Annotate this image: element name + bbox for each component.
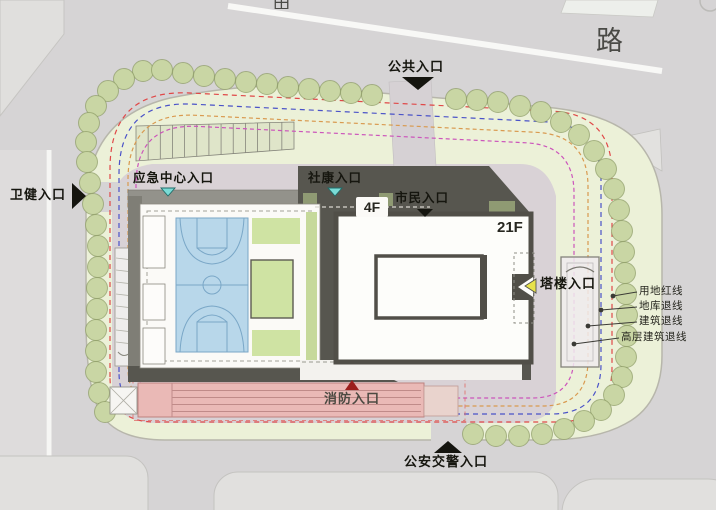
tree bbox=[79, 113, 100, 134]
label-health-entrance: 卫健入口 bbox=[10, 188, 66, 201]
roof-core bbox=[376, 256, 482, 318]
tree bbox=[86, 215, 107, 236]
tree bbox=[362, 85, 383, 106]
tree bbox=[574, 411, 595, 432]
lawn-patch bbox=[252, 218, 300, 244]
skylight bbox=[143, 216, 165, 268]
walkway-police bbox=[431, 416, 467, 443]
label-police-entrance: 公安交警入口 bbox=[404, 455, 488, 468]
tree bbox=[299, 79, 320, 100]
legend-highrise-setback: 高层建筑退线 bbox=[621, 332, 687, 343]
tower-floor-badge: 21F bbox=[497, 220, 523, 235]
sidewalk-bottom-left bbox=[0, 456, 148, 510]
label-clinic-entrance: 社康入口 bbox=[308, 172, 362, 185]
tree bbox=[584, 141, 605, 162]
label-emergency-entrance: 应急中心入口 bbox=[133, 172, 214, 185]
road-name: 路 bbox=[596, 28, 625, 55]
tree bbox=[612, 221, 633, 242]
tree bbox=[88, 257, 109, 278]
tree bbox=[320, 81, 341, 102]
tree bbox=[551, 112, 572, 133]
tree bbox=[609, 200, 630, 221]
sidewalk-bottom-center bbox=[214, 472, 558, 510]
tree bbox=[596, 159, 617, 180]
label-citizen-entrance: 市民入口 bbox=[395, 192, 449, 205]
tree bbox=[77, 152, 98, 173]
label-tower-entrance: 塔楼入口 bbox=[540, 277, 596, 290]
right-ramp bbox=[561, 257, 599, 367]
tree bbox=[194, 66, 215, 87]
tree bbox=[215, 69, 236, 90]
tree bbox=[83, 194, 104, 215]
tree bbox=[463, 424, 484, 445]
tree bbox=[510, 96, 531, 117]
tree bbox=[509, 426, 530, 447]
tree bbox=[278, 77, 299, 98]
tree bbox=[488, 92, 509, 113]
tree bbox=[257, 74, 278, 95]
site-plan-drawing bbox=[0, 0, 716, 510]
tree bbox=[86, 362, 107, 383]
podium-floor-badge: 4F bbox=[356, 197, 388, 217]
tree bbox=[486, 426, 507, 447]
tree bbox=[569, 125, 590, 146]
tree bbox=[341, 83, 362, 104]
tree bbox=[532, 424, 553, 445]
tree bbox=[87, 278, 108, 299]
lawn-patch bbox=[251, 260, 293, 318]
green-strip bbox=[306, 212, 317, 364]
label-fire-entrance: 消防入口 bbox=[324, 392, 380, 405]
tree bbox=[236, 72, 257, 93]
walkway-public bbox=[389, 80, 436, 168]
skylight bbox=[143, 284, 165, 320]
tree bbox=[86, 341, 107, 362]
tree bbox=[88, 236, 109, 257]
legend-building-setback: 建筑退线 bbox=[639, 316, 683, 327]
tree bbox=[554, 419, 575, 440]
tree bbox=[173, 63, 194, 84]
tree bbox=[446, 89, 467, 110]
tree bbox=[89, 383, 110, 404]
tree bbox=[604, 179, 625, 200]
legend-land-red-line: 用地红线 bbox=[639, 286, 683, 297]
label-public-entrance: 公共入口 bbox=[388, 60, 444, 73]
basketball-court bbox=[176, 218, 248, 352]
tree bbox=[616, 347, 637, 368]
lawn-patch bbox=[252, 330, 300, 356]
tree bbox=[87, 299, 108, 320]
fire-lane bbox=[133, 380, 465, 421]
legend-basement-setback: 地库退线 bbox=[639, 301, 683, 312]
sidewalk-bottom-right bbox=[562, 479, 716, 510]
tree bbox=[467, 90, 488, 111]
tree bbox=[76, 132, 97, 153]
tree bbox=[615, 263, 636, 284]
tower-building bbox=[300, 214, 534, 380]
skylight bbox=[143, 328, 165, 364]
tree bbox=[531, 102, 552, 123]
road-name-partial: 田 bbox=[273, 0, 295, 9]
tree bbox=[152, 60, 173, 81]
basement-ramp-box bbox=[110, 387, 137, 414]
tree bbox=[614, 242, 635, 263]
site-plan-canvas: 田 路 公共入口 卫健入口 应急中心入口 社康入口 市民入口 塔楼入口 消防入口… bbox=[0, 0, 716, 510]
tree bbox=[80, 173, 101, 194]
tree bbox=[133, 61, 154, 82]
tree bbox=[86, 320, 107, 341]
